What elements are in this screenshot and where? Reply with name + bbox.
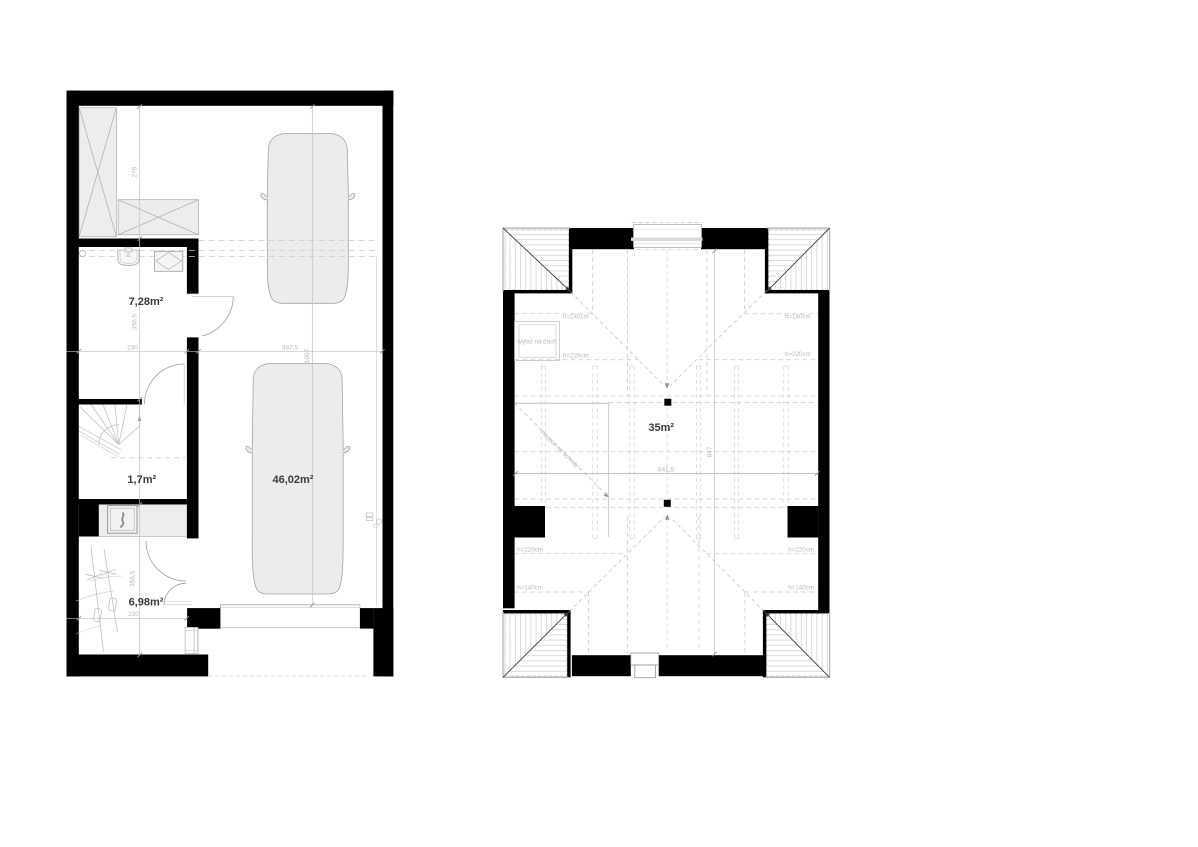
svg-text:7,28m²: 7,28m² (129, 296, 164, 308)
svg-text:230: 230 (127, 344, 138, 351)
svg-text:46,02m²: 46,02m² (273, 474, 314, 486)
svg-text:35m²: 35m² (648, 422, 674, 434)
svg-text:387,5: 387,5 (282, 344, 299, 351)
svg-text:h=220cm: h=220cm (788, 546, 814, 553)
svg-text:356,5: 356,5 (132, 313, 139, 330)
svg-text:h=140cm: h=140cm (788, 585, 814, 592)
svg-text:h=220cm: h=220cm (785, 351, 811, 358)
svg-text:1,7m²: 1,7m² (127, 474, 156, 486)
svg-text:h=140cm: h=140cm (785, 314, 811, 321)
svg-text:6,98m²: 6,98m² (129, 597, 164, 609)
svg-text:641,5: 641,5 (658, 467, 675, 474)
svg-text:h=220cm: h=220cm (517, 546, 543, 553)
svg-text:356,5: 356,5 (130, 570, 137, 587)
svg-text:h=140cm: h=140cm (517, 585, 543, 592)
svg-text:276: 276 (132, 166, 139, 177)
svg-text:h=140cm: h=140cm (563, 314, 589, 321)
svg-text:wyłaz na dach: wyłaz na dach (516, 339, 557, 346)
svg-text:1057: 1057 (304, 348, 311, 363)
svg-text:847: 847 (706, 446, 713, 457)
svg-text:230: 230 (128, 611, 139, 618)
svg-text:h=220cm: h=220cm (563, 353, 589, 360)
